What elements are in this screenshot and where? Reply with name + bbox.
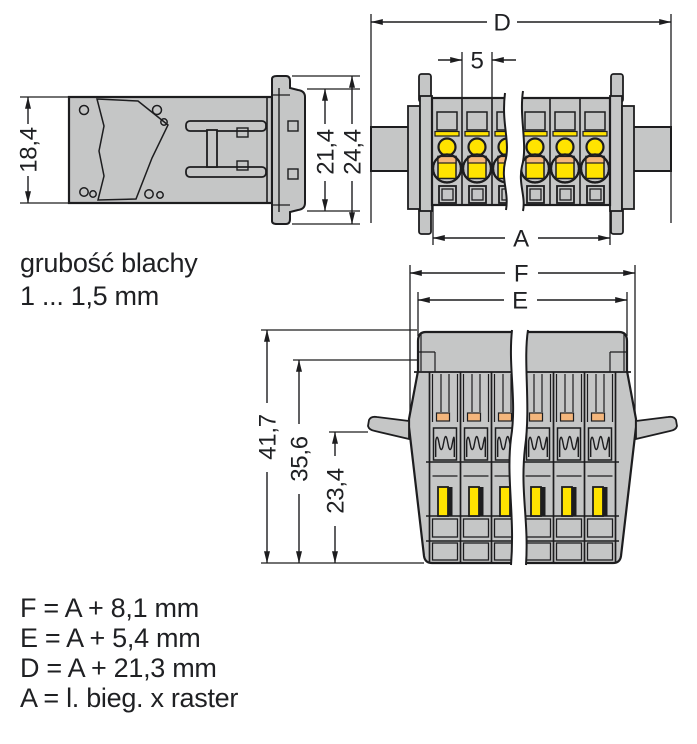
front-view-cable-left [371, 127, 410, 171]
dimension-label-21-4: 21,4 [312, 129, 339, 175]
bottom-view-break [509, 330, 528, 565]
bottom-view: F E 41,7 35,6 23,4 [254, 260, 677, 565]
bottom-view-lever-left [368, 417, 409, 439]
side-view: 18,4 [15, 76, 366, 224]
drawing-svg: 18,4 [0, 0, 697, 744]
sheet-thickness-line1: grubość blachy [20, 248, 198, 278]
dimension-label-E: E [512, 287, 528, 314]
bottom-view-lever-right [636, 417, 677, 439]
front-view: D 5 A [371, 9, 671, 252]
dimension-label-5: 5 [470, 47, 483, 74]
dimension-label-35-6: 35,6 [286, 436, 313, 482]
dimension-label-23-4: 23,4 [322, 468, 349, 514]
side-view-flange [272, 76, 305, 224]
formula-e: E = A + 5,4 mm [20, 623, 200, 653]
dimension-41-7: 41,7 [254, 330, 424, 563]
formula-a: A = l. bieg. x raster [20, 683, 238, 713]
dimension-label-41-7: 41,7 [254, 414, 281, 460]
dimension-23-4: 23,4 [322, 432, 368, 563]
connector-dimensional-drawing: 18,4 [0, 0, 697, 744]
dimension-18-4: 18,4 [15, 97, 69, 203]
formula-d: D = A + 21,3 mm [20, 653, 217, 683]
dimension-E: E [418, 287, 627, 336]
formula-list: F = A + 8,1 mm E = A + 5,4 mm D = A + 21… [20, 593, 238, 713]
formula-f: F = A + 8,1 mm [20, 593, 199, 623]
dimension-label-18-4: 18,4 [15, 127, 42, 173]
dimension-label-24-4: 24,4 [339, 129, 366, 175]
dimension-label-A: A [513, 225, 529, 252]
front-view-break [504, 91, 524, 211]
dimension-label-D: D [493, 9, 510, 36]
sheet-thickness-note: grubość blachy 1 ... 1,5 mm [20, 248, 198, 311]
dimension-label-F: F [514, 260, 528, 287]
front-view-cable-right [632, 127, 671, 171]
dimension-5: 5 [438, 47, 516, 97]
dimension-35-6: 35,6 [286, 360, 417, 563]
dimension-A: A [433, 205, 610, 252]
sheet-thickness-line2: 1 ... 1,5 mm [20, 281, 159, 311]
